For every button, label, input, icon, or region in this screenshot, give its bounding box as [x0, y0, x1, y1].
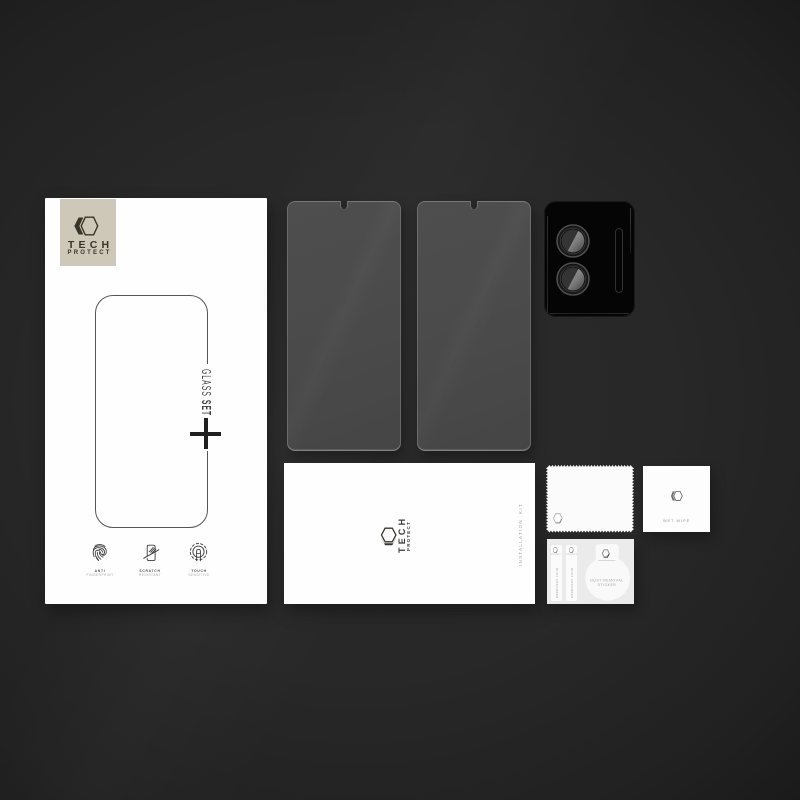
svg-text:STICKER: STICKER	[597, 582, 616, 586]
